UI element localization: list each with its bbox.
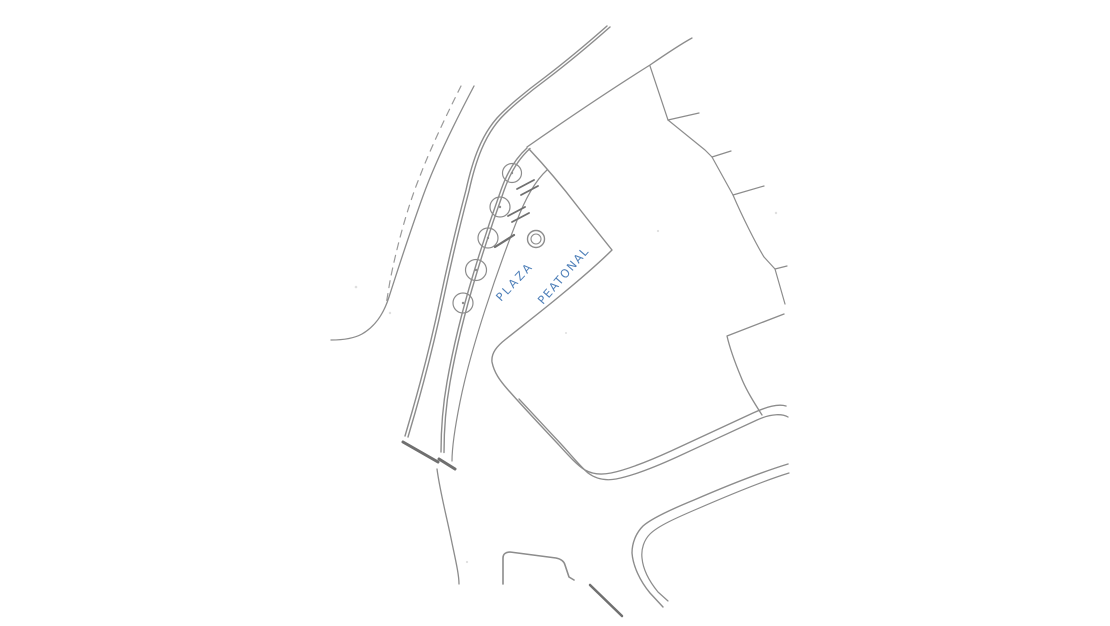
plaza-boundary [492, 149, 786, 474]
building-stepped-edge [650, 66, 787, 304]
street-west-curb [405, 26, 607, 436]
fountain [528, 231, 545, 248]
site-plan-sketch: PLAZA PEATONAL [0, 0, 1110, 626]
plaza-label: PLAZA PEATONAL [493, 244, 592, 307]
bottom-diagonal-mark [590, 585, 622, 616]
sw-corner-curve [437, 469, 459, 584]
bench-2 [508, 207, 529, 222]
lower-street-nw-curb [519, 399, 788, 480]
bottom-structure [503, 552, 574, 584]
street-east-curb-inner [444, 149, 530, 453]
block-ne-diagonal [527, 38, 692, 147]
scanned-sketch-page: PLAZA PEATONAL [0, 0, 1110, 626]
bench-1 [517, 180, 538, 195]
lower-street-se-curb [632, 464, 788, 607]
building-corner [727, 314, 784, 415]
street-west-curb-inner [408, 27, 610, 437]
lower-street-se-curb-inner [642, 473, 789, 601]
west-curb-end-tick [403, 442, 438, 462]
